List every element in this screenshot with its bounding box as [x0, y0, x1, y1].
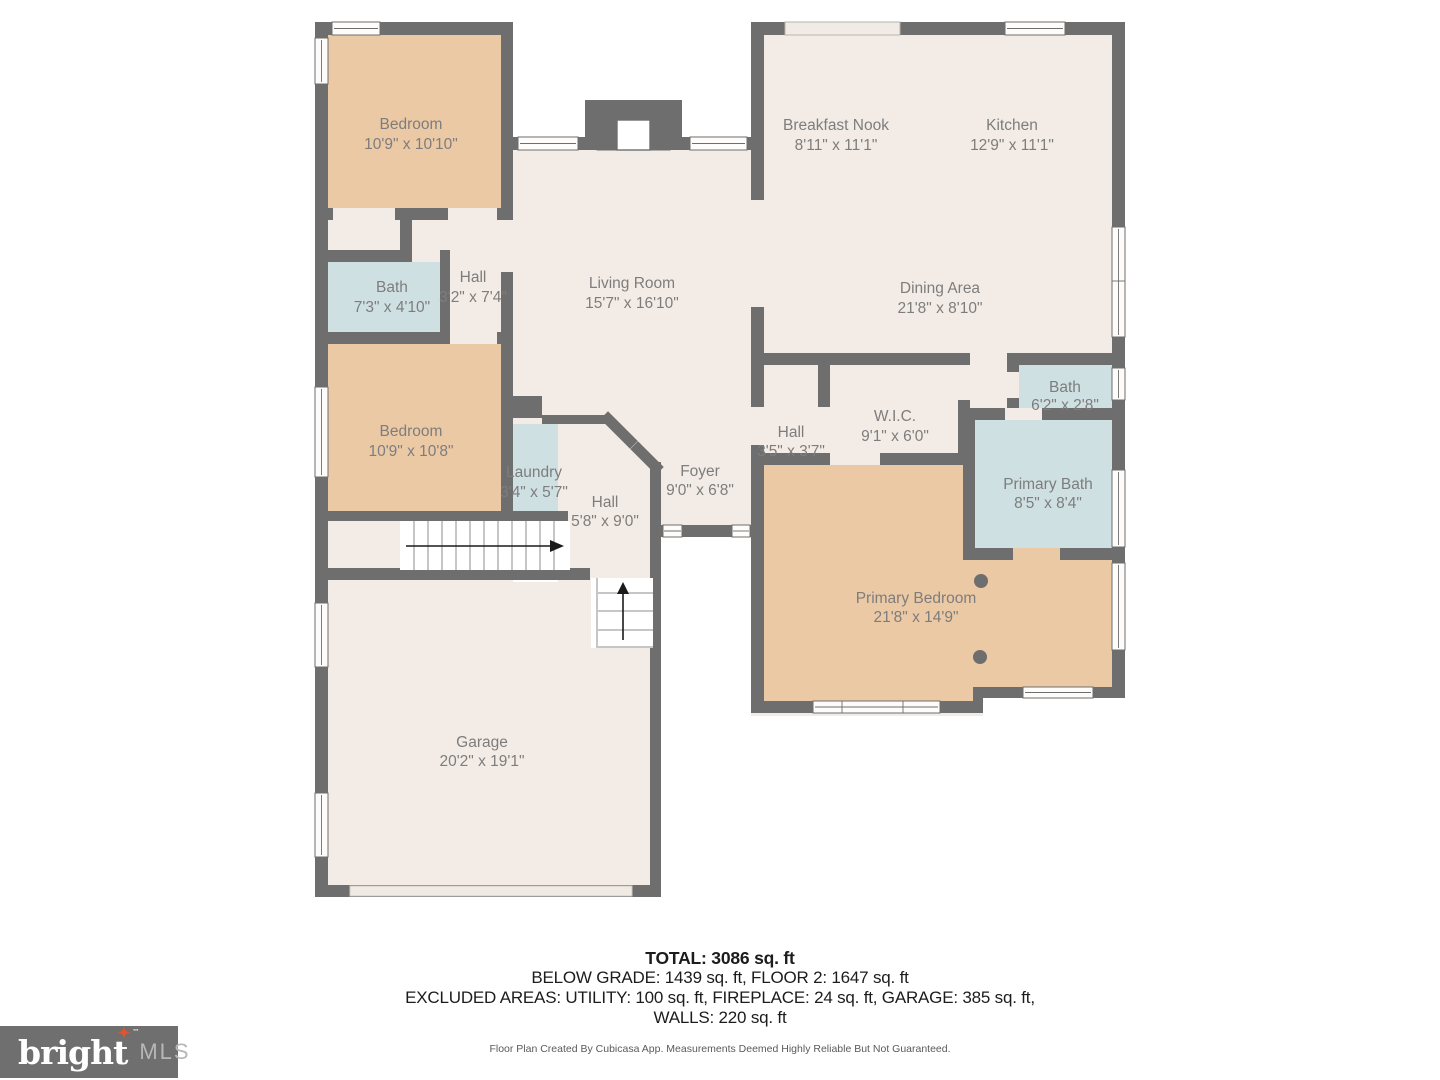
room-dims-bath-1: 7'3" x 4'10"	[354, 299, 430, 316]
room-dims-breakfast-nook: 8'11" x 11'1"	[795, 137, 878, 154]
room-label-primary-bedroom: Primary Bedroom	[856, 590, 977, 607]
disclaimer-text: Floor Plan Created By Cubicasa App. Meas…	[0, 1043, 1440, 1055]
room-label-primary-bath: Primary Bath	[1003, 476, 1093, 493]
room-label-bedroom-1: Bedroom	[380, 116, 443, 133]
room-label-bath-2: Bath	[1049, 379, 1081, 396]
room-area-bath-1	[328, 262, 440, 332]
fixture-dot	[974, 574, 988, 588]
room-label-hall-1: Hall	[460, 269, 487, 286]
room-dims-wic: 9'1" x 6'0"	[861, 428, 929, 445]
excluded-areas: EXCLUDED AREAS: UTILITY: 100 sq. ft, FIR…	[0, 988, 1440, 1008]
total-area: TOTAL: 3086 sq. ft	[0, 948, 1440, 968]
trademark-symbol: ™	[132, 1028, 139, 1035]
fireplace	[597, 112, 670, 150]
star-icon: ✦	[118, 1026, 131, 1041]
room-dims-bedroom-1: 10'9" x 10'10"	[364, 136, 458, 153]
room-label-bedroom-2: Bedroom	[380, 423, 443, 440]
breakfast-opening	[785, 22, 900, 35]
room-dims-bedroom-2: 10'9" x 10'8"	[368, 443, 453, 460]
fixture-dot	[973, 650, 987, 664]
garage-door	[350, 886, 632, 896]
logo-mls-text: MLS	[139, 1039, 190, 1065]
room-dims-foyer: 9'0" x 6'8"	[666, 482, 734, 499]
room-label-foyer: Foyer	[680, 463, 720, 480]
room-label-bath-1: Bath	[376, 279, 408, 296]
room-dims-living-room: 15'7" x 16'10"	[585, 295, 679, 312]
room-label-laundry: Laundry	[506, 464, 562, 481]
room-label-hall-2: Hall	[592, 494, 619, 511]
room-label-wic: W.I.C.	[874, 408, 916, 425]
logo-brand-text: bright✦™	[18, 1036, 127, 1069]
below-grade-area: BELOW GRADE: 1439 sq. ft, FLOOR 2: 1647 …	[0, 968, 1440, 988]
room-dims-primary-bedroom: 21'8" x 14'9"	[873, 609, 958, 626]
bright-mls-logo: bright✦™ MLS	[0, 1026, 178, 1078]
room-label-living-room: Living Room	[589, 275, 675, 292]
room-dims-hall-1: 3'2" x 7'4"	[439, 289, 507, 306]
room-dims-dining-area: 21'8" x 8'10"	[897, 300, 982, 317]
room-dims-laundry: 3'4" x 5'7"	[500, 484, 568, 501]
stairs-basement	[400, 521, 570, 570]
floorplan-canvas: Bedroom 10'9" x 10'10" Bath 7'3" x 4'10"…	[0, 0, 1440, 1080]
room-label-dining-area: Dining Area	[900, 280, 981, 297]
room-dims-hall-2: 5'8" x 9'0"	[571, 513, 639, 530]
room-label-hall-3: Hall	[778, 424, 805, 441]
room-label-kitchen: Kitchen	[986, 117, 1038, 134]
room-dims-primary-bath: 8'5" x 8'4"	[1014, 495, 1082, 512]
room-dims-garage: 20'2" x 19'1"	[439, 753, 524, 770]
firebox	[617, 120, 650, 150]
floor-plan-svg: Bedroom 10'9" x 10'10" Bath 7'3" x 4'10"…	[0, 0, 1440, 1080]
room-label-breakfast-nook: Breakfast Nook	[783, 117, 889, 134]
stairs-up	[591, 578, 653, 648]
room-dims-hall-3: 3'5" x 3'7"	[757, 443, 825, 460]
room-dims-kitchen: 12'9" x 11'1"	[970, 137, 1054, 154]
room-label-garage: Garage	[456, 734, 508, 751]
room-dims-bath-2: 6'2" x 2'8"	[1031, 397, 1099, 414]
area-summary: TOTAL: 3086 sq. ft BELOW GRADE: 1439 sq.…	[0, 948, 1440, 1028]
walls-area: WALLS: 220 sq. ft	[0, 1008, 1440, 1028]
